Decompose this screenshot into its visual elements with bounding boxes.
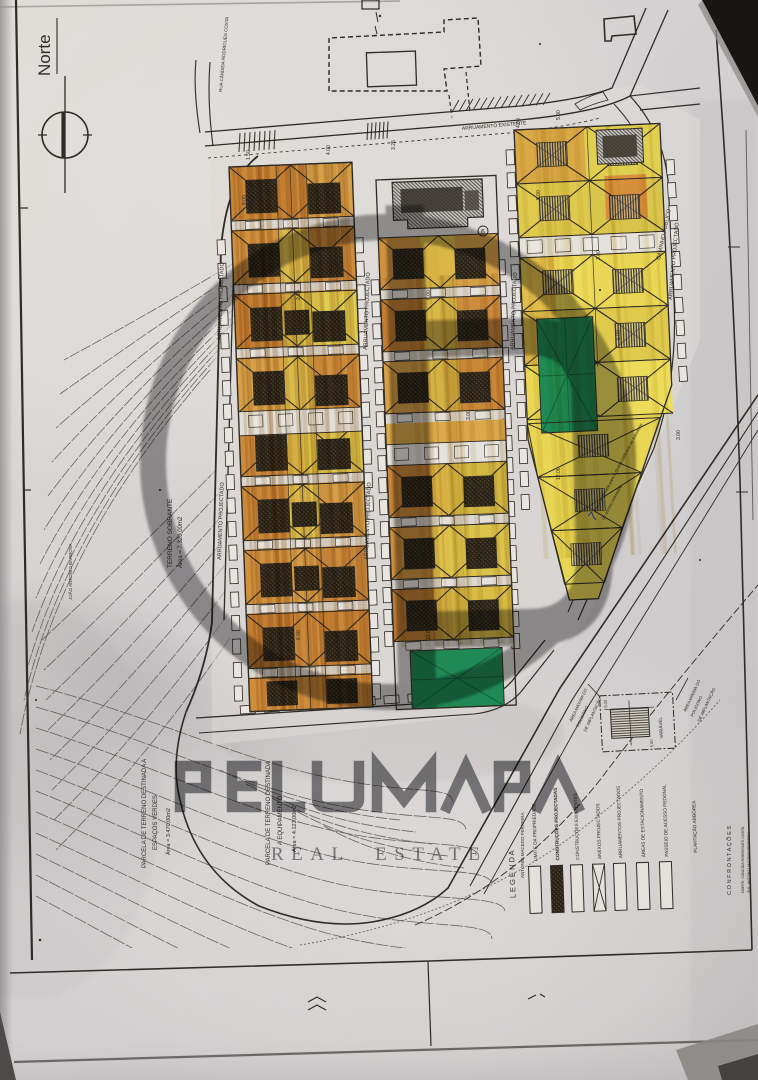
svg-text:SUL: ANTÓNIO MACEDO FERREIRA: SUL: ANTÓNIO MACEDO FERREIRA: [746, 831, 751, 893]
svg-text:3.25: 3.25: [391, 140, 397, 150]
svg-text:C O N F R O N T A Ç Õ E S: C O N F R O N T A Ç Õ E S: [726, 826, 733, 895]
svg-text:PARCELA DE TERRENO DESTINADA A: PARCELA DE TERRENO DESTINADA A: [142, 759, 148, 868]
svg-text:5.00: 5.00: [616, 330, 622, 340]
svg-text:4.00: 4.00: [516, 118, 522, 128]
svg-text:5.00: 5.00: [649, 739, 654, 748]
svg-text:NORTE: CÂNDIDA RODRIGUES COSTA: NORTE: CÂNDIDA RODRIGUES COSTA: [741, 826, 745, 893]
svg-text:5.00: 5.00: [556, 110, 562, 120]
svg-text:6.00: 6.00: [426, 290, 432, 300]
svg-text:3.00: 3.00: [676, 430, 682, 440]
svg-text:VARIÁVEL: VARIÁVEL: [657, 716, 664, 738]
svg-text:1.50: 1.50: [246, 150, 252, 160]
svg-text:8.00: 8.00: [242, 195, 248, 205]
svg-text:5.00: 5.00: [536, 190, 542, 200]
svg-text:JOÃO ANTÓNIO BARBOSA: JOÃO ANTÓNIO BARBOSA: [67, 543, 73, 600]
svg-text:6.00: 6.00: [296, 630, 302, 640]
svg-text:4.00: 4.00: [326, 145, 332, 155]
svg-text:2.50: 2.50: [296, 290, 302, 300]
svg-text:L E G E N D A: L E G E N D A: [507, 850, 518, 898]
svg-text:3.00: 3.00: [466, 410, 472, 420]
svg-text:ESPAÇOS VERDES: ESPAÇOS VERDES: [153, 795, 159, 850]
svg-text:ANTÓNIO MACEDO FERREIRA: ANTÓNIO MACEDO FERREIRA: [519, 812, 525, 878]
svg-text:REAL ESTATE: REAL ESTATE: [271, 844, 487, 865]
svg-text:5.00: 5.00: [603, 699, 608, 708]
svg-text:3.00: 3.00: [596, 250, 602, 260]
svg-text:Área = 3.470,00m2: Área = 3.470,00m2: [165, 808, 172, 855]
svg-text:Norte: Norte: [35, 34, 54, 76]
svg-text:12.00: 12.00: [556, 467, 562, 480]
